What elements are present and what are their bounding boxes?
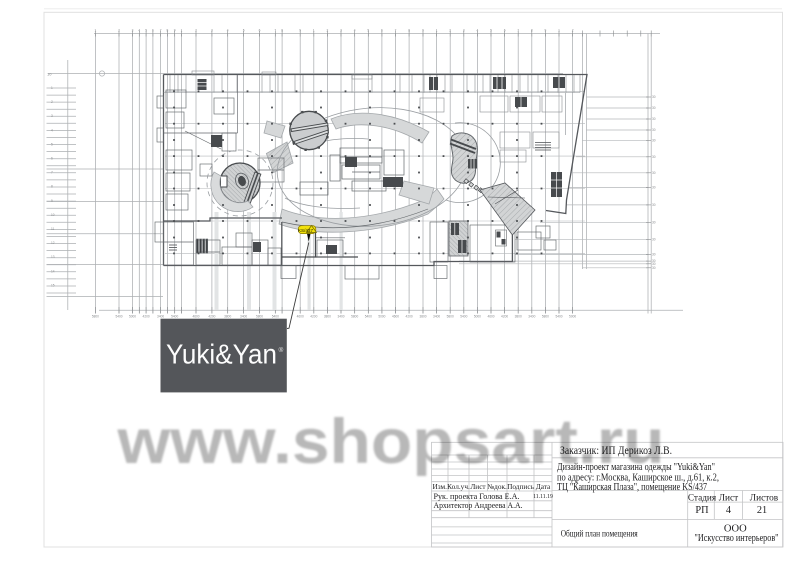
svg-text:1: 1	[51, 86, 53, 90]
svg-text:3800: 3800	[515, 315, 522, 319]
svg-text:1: 1	[558, 29, 560, 33]
svg-text:6: 6	[51, 157, 53, 161]
svg-text:5000: 5000	[569, 315, 576, 319]
svg-text:4200: 4200	[501, 315, 508, 319]
svg-text:4200: 4200	[143, 315, 150, 319]
svg-text:3400: 3400	[528, 315, 535, 319]
svg-text:Стадия: Стадия	[688, 493, 717, 503]
svg-text:5400: 5400	[365, 315, 372, 319]
svg-text:30: 30	[652, 203, 656, 207]
svg-text:Подпись: Подпись	[507, 482, 534, 491]
svg-text:"Искусство интерьеров": "Искусство интерьеров"	[695, 533, 779, 544]
svg-text:Листов: Листов	[750, 493, 779, 503]
svg-text:5400: 5400	[460, 315, 467, 319]
svg-text:6: 6	[152, 29, 154, 33]
svg-text:12: 12	[51, 241, 55, 245]
svg-text:4200: 4200	[310, 315, 317, 319]
svg-text:5: 5	[367, 29, 369, 33]
svg-text:5: 5	[490, 29, 492, 33]
svg-text:30: 30	[652, 155, 656, 159]
svg-text:8: 8	[281, 29, 283, 33]
svg-text:7: 7	[51, 171, 53, 175]
svg-text:30: 30	[652, 128, 656, 132]
svg-text:1: 1	[436, 29, 438, 33]
svg-text:7: 7	[395, 29, 397, 33]
svg-text:30: 30	[652, 266, 656, 270]
svg-text:30: 30	[652, 171, 656, 175]
svg-text:6: 6	[381, 29, 383, 33]
svg-text:30: 30	[652, 186, 656, 190]
svg-text:5800: 5800	[92, 315, 99, 319]
svg-text:5000: 5000	[474, 315, 481, 319]
svg-text:РП: РП	[695, 505, 709, 516]
svg-text:Лист: Лист	[470, 482, 486, 491]
svg-text:5400: 5400	[555, 315, 562, 319]
svg-text:3: 3	[132, 29, 134, 33]
svg-text:Изм.: Изм.	[432, 482, 447, 491]
svg-text:14: 14	[51, 269, 55, 273]
svg-text:30: 30	[652, 238, 656, 242]
svg-text:4: 4	[227, 29, 229, 33]
svg-text:9: 9	[174, 29, 176, 33]
svg-text:4: 4	[726, 505, 731, 516]
svg-text:6: 6	[504, 29, 506, 33]
svg-text:9: 9	[299, 29, 301, 33]
svg-text:4: 4	[51, 128, 53, 132]
svg-text:5800: 5800	[542, 315, 549, 319]
svg-text:5: 5	[243, 29, 245, 33]
svg-text:№док.: №док.	[487, 482, 507, 491]
svg-text:30: 30	[652, 252, 656, 256]
svg-text:9: 9	[545, 29, 547, 33]
svg-text:5800: 5800	[447, 315, 454, 319]
svg-text:4: 4	[354, 29, 356, 33]
svg-text:5000: 5000	[129, 315, 136, 319]
svg-text:3400: 3400	[240, 315, 247, 319]
svg-text:Yuki&Yan: Yuki&Yan	[166, 339, 277, 370]
svg-text:ТЦ "Каширская Плаза", помещени: ТЦ "Каширская Плаза", помещение KS/437	[557, 482, 707, 493]
svg-text:11.11.19: 11.11.19	[533, 494, 553, 500]
svg-text:8: 8	[408, 29, 410, 33]
svg-text:5000: 5000	[378, 315, 385, 319]
svg-text:7: 7	[274, 29, 276, 33]
svg-text:10: 10	[47, 72, 52, 77]
svg-text:5800: 5800	[256, 315, 263, 319]
svg-text:9: 9	[422, 29, 424, 33]
svg-text:3400: 3400	[157, 315, 164, 319]
svg-text:Архитектор Андреева А.А.: Архитектор Андреева А.А.	[434, 501, 523, 510]
svg-text:2: 2	[195, 29, 197, 33]
svg-text:4600: 4600	[392, 315, 399, 319]
svg-text:2: 2	[51, 100, 53, 104]
svg-text:Кол.уч.: Кол.уч.	[447, 482, 470, 491]
svg-text:4600: 4600	[297, 315, 304, 319]
svg-text:3800: 3800	[224, 315, 231, 319]
svg-text:2: 2	[327, 29, 329, 33]
svg-text:10: 10	[51, 213, 55, 217]
svg-text:www.shopsart.ru: www.shopsart.ru	[116, 407, 664, 477]
svg-text:1: 1	[181, 29, 183, 33]
svg-text:4: 4	[477, 29, 479, 33]
svg-text:6: 6	[259, 29, 261, 33]
svg-text:30: 30	[652, 106, 656, 110]
svg-text:13: 13	[51, 255, 55, 259]
svg-text:8: 8	[531, 29, 533, 33]
svg-text:3: 3	[463, 29, 465, 33]
svg-text:1: 1	[95, 29, 97, 33]
svg-text:3: 3	[211, 29, 213, 33]
svg-text:30: 30	[652, 95, 656, 99]
svg-text:7: 7	[517, 29, 519, 33]
svg-text:15: 15	[51, 283, 55, 287]
svg-text:1: 1	[313, 29, 315, 33]
svg-text:2: 2	[572, 29, 574, 33]
svg-text:4600: 4600	[192, 315, 199, 319]
svg-text:Лист: Лист	[719, 493, 738, 503]
svg-text:®: ®	[279, 346, 284, 354]
svg-text:5: 5	[51, 142, 53, 146]
svg-text:21: 21	[757, 505, 767, 516]
svg-text:2: 2	[118, 29, 120, 33]
svg-text:3: 3	[51, 114, 53, 118]
svg-text:8: 8	[167, 29, 169, 33]
svg-text:5400: 5400	[171, 315, 178, 319]
svg-text:3800: 3800	[419, 315, 426, 319]
svg-text:Общий план помещения: Общий план помещения	[561, 529, 639, 540]
svg-text:3400: 3400	[337, 315, 344, 319]
svg-text:4: 4	[138, 29, 140, 33]
svg-text:Рук. проекта Голова Е.А.: Рук. проекта Голова Е.А.	[434, 492, 520, 501]
svg-text:4200: 4200	[406, 315, 413, 319]
svg-text:KS/437: KS/437	[298, 228, 314, 233]
svg-text:2: 2	[449, 29, 451, 33]
svg-text:3: 3	[340, 29, 342, 33]
svg-text:30: 30	[652, 139, 656, 143]
svg-text:5400: 5400	[272, 315, 279, 319]
svg-text:30: 30	[652, 220, 656, 224]
svg-text:30: 30	[652, 117, 656, 121]
svg-text:5400: 5400	[115, 315, 122, 319]
svg-text:5: 5	[145, 29, 147, 33]
svg-text:7: 7	[160, 29, 162, 33]
svg-text:4200: 4200	[208, 315, 215, 319]
svg-text:5800: 5800	[351, 315, 358, 319]
svg-text:11: 11	[51, 227, 55, 231]
svg-text:3800: 3800	[324, 315, 331, 319]
svg-text:8: 8	[51, 185, 53, 189]
svg-text:3400: 3400	[433, 315, 440, 319]
svg-text:4600: 4600	[487, 315, 494, 319]
svg-text:9: 9	[51, 199, 53, 203]
svg-text:Дата: Дата	[536, 482, 551, 491]
